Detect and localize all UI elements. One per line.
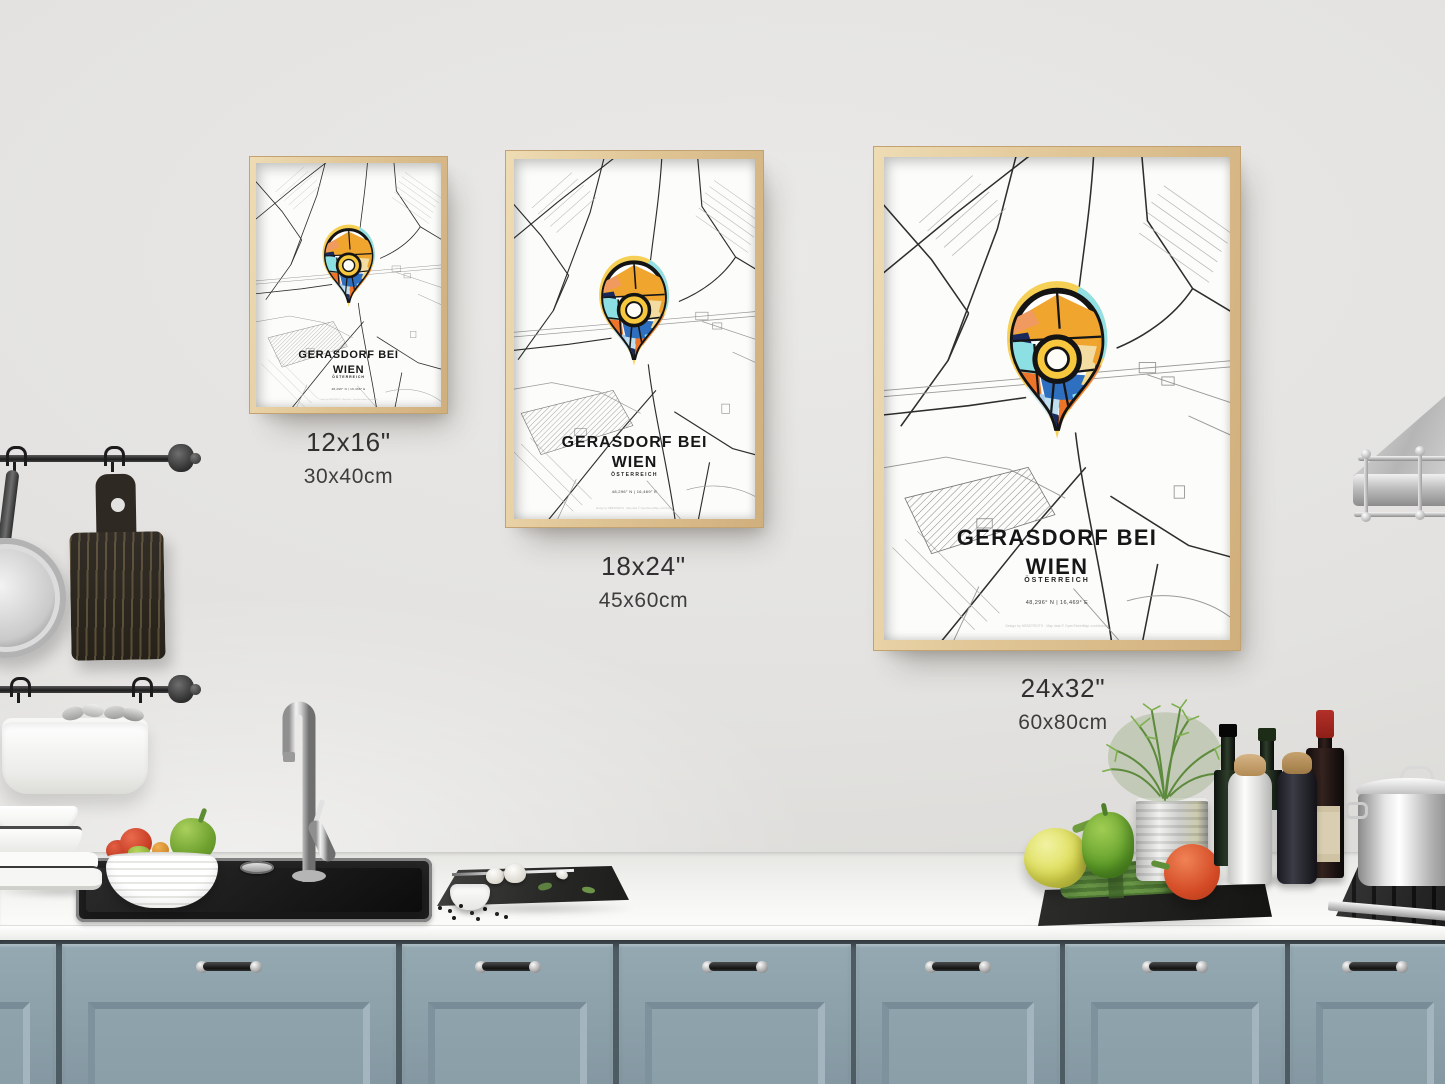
cabinet-handle — [1342, 960, 1408, 973]
poster-frame-12x16: GERASDORF BEI WIEN ÖSTERREICH 48,296° N … — [250, 157, 447, 413]
location-pin-icon — [308, 223, 389, 316]
plate — [0, 866, 102, 890]
poster-microprint: Design by HEBSTREITS · Map data © OpenSt… — [884, 624, 1230, 628]
cabinet-handle — [1142, 960, 1208, 973]
pot-body — [1358, 794, 1445, 886]
size-label-18x24: 18x24" 45x60cm — [515, 551, 772, 613]
cabinet-handle — [196, 960, 262, 973]
s-hook — [10, 677, 31, 697]
poster-frame-24x32: GERASDORF BEI WIEN ÖSTERREICH 48,296° N … — [874, 147, 1240, 650]
cabinet-handle — [475, 960, 541, 973]
herb-plant-foliage — [1098, 698, 1232, 810]
cabinet-handle — [702, 960, 768, 973]
poster-artwork: GERASDORF BEI WIEN ÖSTERREICH 48,296° N … — [256, 163, 441, 407]
faucet — [270, 682, 360, 882]
oil-bottle — [1221, 732, 1235, 774]
dish-stack — [0, 806, 112, 894]
cabinet-door — [856, 944, 1060, 1084]
size-cm: 45x60cm — [515, 589, 772, 613]
cabinet-door-panel — [645, 1002, 825, 1084]
countertop-front-edge — [0, 925, 1445, 940]
wine-bottle-cap — [1316, 710, 1334, 738]
salt-grinder — [1228, 770, 1272, 884]
cabinet-door-panel — [1091, 1002, 1259, 1084]
fruit-bowl — [106, 810, 218, 908]
cabinet-door-panel — [88, 1002, 370, 1084]
poster-artwork: GERASDORF BEI WIEN ÖSTERREICH 48,296° N … — [884, 157, 1230, 640]
cooking-pot — [1358, 770, 1445, 888]
cabinet-door-panel — [428, 1002, 587, 1084]
cabinet-door-panel — [0, 1002, 30, 1084]
poster-coordinates: 48,296° N | 16,469° E — [884, 600, 1230, 606]
range-hood-rail — [1358, 456, 1445, 461]
range-hood-rail-post — [1364, 452, 1368, 518]
poster-title-line1: GERASDORF BEI — [562, 434, 708, 451]
hanging-cutting-board — [68, 473, 165, 661]
poster-country: ÖSTERREICH — [256, 375, 441, 379]
cabinet-door-panel — [882, 1002, 1034, 1084]
cabinet-door — [402, 944, 613, 1084]
rail-end-cap — [168, 675, 194, 703]
oil-bottle-cap — [1258, 728, 1276, 741]
red-bell-pepper — [1164, 844, 1220, 900]
grinder-wood-cap — [1282, 752, 1312, 774]
poster-coordinates: 48,296° N | 16,469° E — [514, 489, 755, 494]
garlic-bulb — [486, 868, 504, 884]
s-hook — [132, 677, 153, 697]
s-hook — [104, 446, 125, 466]
poster-microprint: Design by HEBSTREITS · Map data © OpenSt… — [256, 399, 441, 401]
sink-drain-knob — [240, 861, 274, 874]
kitchen-product-mockup: GERASDORF BEI WIEN ÖSTERREICH 48,296° N … — [0, 0, 1445, 1084]
poster-title-line2: WIEN — [333, 364, 364, 376]
poster-title-line1: GERASDORF BEI — [298, 349, 398, 361]
oil-bottle-cap — [1219, 724, 1237, 737]
rail-ball-finial — [1415, 510, 1425, 520]
yellow-bell-pepper — [1024, 828, 1088, 888]
wall-rail-top — [0, 455, 192, 462]
poster-country: ÖSTERREICH — [884, 577, 1230, 584]
bowl-body — [106, 856, 218, 908]
cabinet-door — [619, 944, 851, 1084]
poster-title: GERASDORF BEI WIEN — [514, 433, 755, 475]
rail-ball-finial — [1361, 512, 1371, 522]
cabinet-door — [1065, 944, 1285, 1084]
cabinet-door-panel — [1316, 1002, 1434, 1084]
poster-title-line2: WIEN — [1026, 554, 1089, 579]
utensil-basket — [2, 718, 148, 794]
pot-side-handle — [1345, 802, 1368, 819]
poster-title-line1: GERASDORF BEI — [957, 525, 1158, 550]
rail-ball-finial — [1415, 446, 1425, 456]
cabinet-door — [0, 944, 56, 1084]
rail-end-cap — [168, 444, 194, 472]
cabinet-handle — [925, 960, 991, 973]
poster-frame-18x24: GERASDORF BEI WIEN ÖSTERREICH 48,296° N … — [506, 151, 763, 527]
poster-artwork: GERASDORF BEI WIEN ÖSTERREICH 48,296° N … — [514, 159, 755, 519]
s-hook — [6, 446, 27, 466]
location-pin-icon — [581, 247, 687, 384]
grinder-wood-cap — [1234, 754, 1266, 776]
cabinet-row — [0, 940, 1445, 1084]
poster-country: ÖSTERREICH — [514, 472, 755, 478]
poster-coordinates: 48,296° N | 16,469° E — [256, 387, 441, 391]
poster-title-line2: WIEN — [612, 454, 658, 471]
poster-title: GERASDORF BEI WIEN — [884, 524, 1230, 581]
size-cm: 30x40cm — [250, 465, 447, 489]
cutlery — [62, 704, 146, 722]
poster-microprint: Design by HEBSTREITS · Map data © OpenSt… — [514, 507, 755, 510]
poster-title: GERASDORF BEI WIEN — [256, 348, 441, 377]
cutting-board-body — [69, 531, 165, 661]
size-inches: 18x24" — [515, 551, 772, 582]
garlic-bulb — [504, 864, 526, 883]
peppercorns — [438, 906, 442, 910]
green-bell-pepper — [1082, 812, 1134, 878]
cabinet-door — [62, 944, 396, 1084]
cabinet-door — [1290, 944, 1445, 1084]
rail-ball-finial — [1361, 449, 1371, 459]
size-label-12x16: 12x16" 30x40cm — [250, 427, 447, 489]
location-pin-icon — [981, 275, 1133, 459]
pepper-grinder — [1277, 768, 1317, 884]
size-inches: 12x16" — [250, 427, 447, 458]
range-hood-rail-post — [1418, 450, 1422, 516]
